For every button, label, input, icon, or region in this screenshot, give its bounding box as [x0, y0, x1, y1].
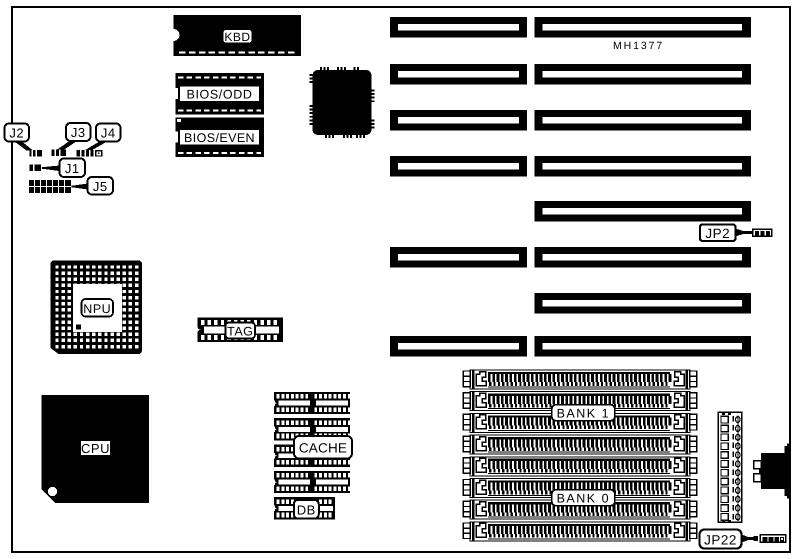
svg-text:JP22: JP22	[704, 532, 737, 547]
svg-text:NPU: NPU	[83, 302, 111, 316]
svg-text:J2: J2	[9, 126, 24, 141]
svg-text:MH1377: MH1377	[613, 40, 664, 52]
svg-text:J4: J4	[101, 126, 116, 141]
svg-text:BIOS/EVEN: BIOS/EVEN	[184, 131, 255, 145]
svg-text:CPU: CPU	[81, 441, 110, 456]
svg-text:J3: J3	[71, 125, 86, 140]
svg-text:J1: J1	[65, 161, 80, 176]
svg-text:BANK 0: BANK 0	[557, 492, 610, 506]
svg-text:BANK 1: BANK 1	[557, 407, 610, 421]
svg-text:J5: J5	[93, 179, 108, 194]
svg-text:BIOS/ODD: BIOS/ODD	[187, 88, 253, 102]
svg-text:JP2: JP2	[705, 226, 730, 241]
svg-text:KBD: KBD	[224, 30, 250, 44]
svg-text:TAG: TAG	[227, 325, 253, 339]
svg-text:DB: DB	[297, 502, 316, 517]
svg-text:CACHE: CACHE	[299, 441, 347, 456]
